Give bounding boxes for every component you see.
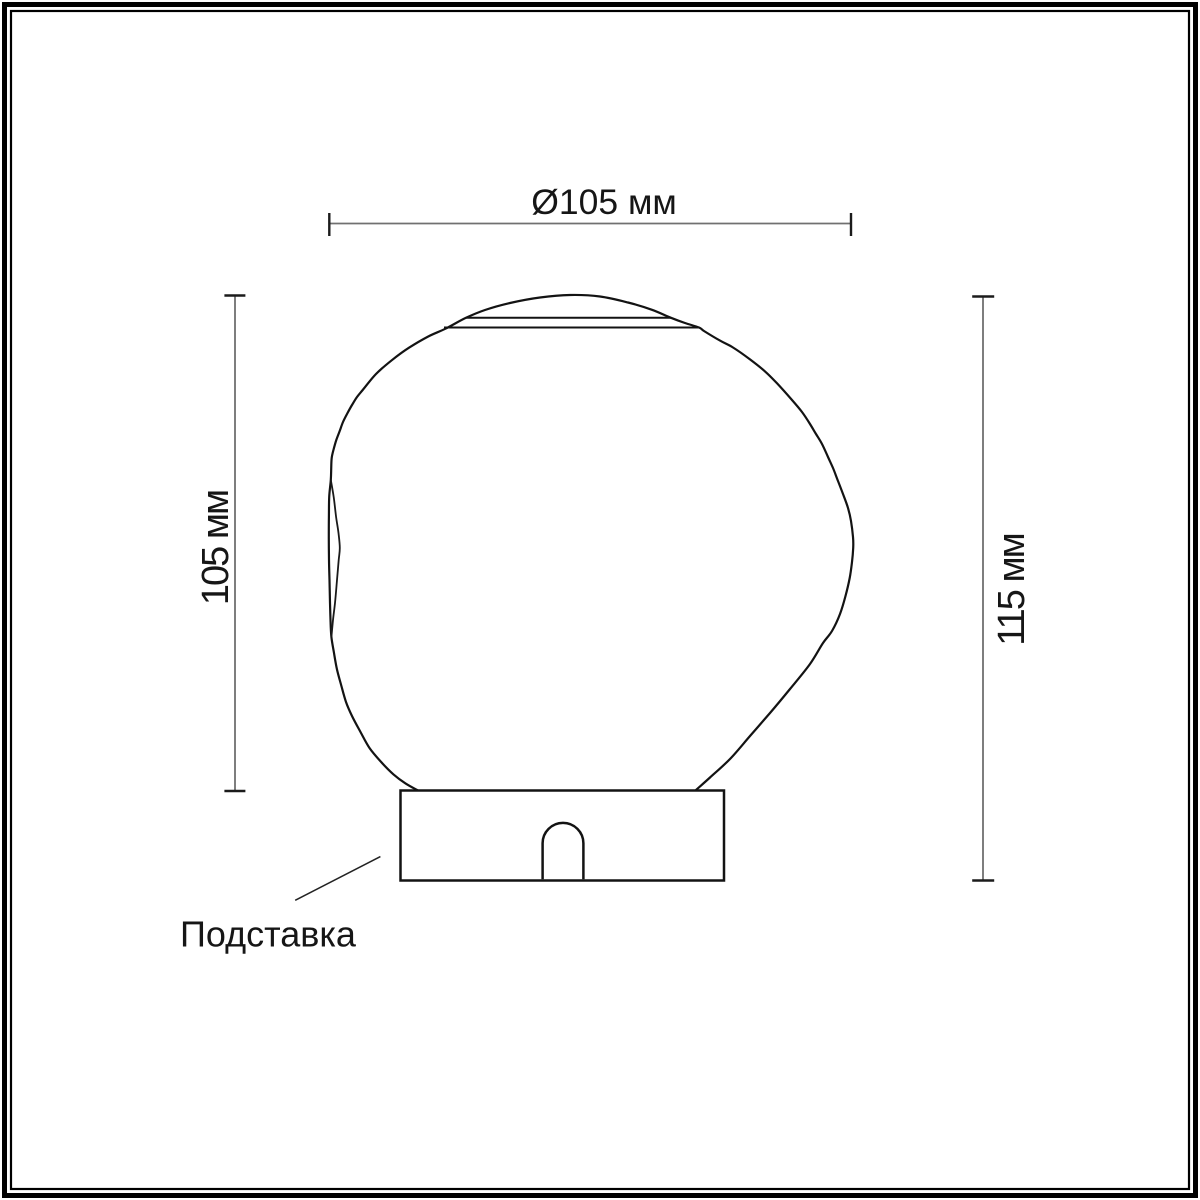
svg-text:Подставка: Подставка: [180, 914, 357, 955]
svg-text:105 мм: 105 мм: [195, 491, 237, 605]
svg-text:115 мм: 115 мм: [991, 534, 1033, 645]
svg-text:Ø105 мм: Ø105 мм: [531, 182, 677, 222]
